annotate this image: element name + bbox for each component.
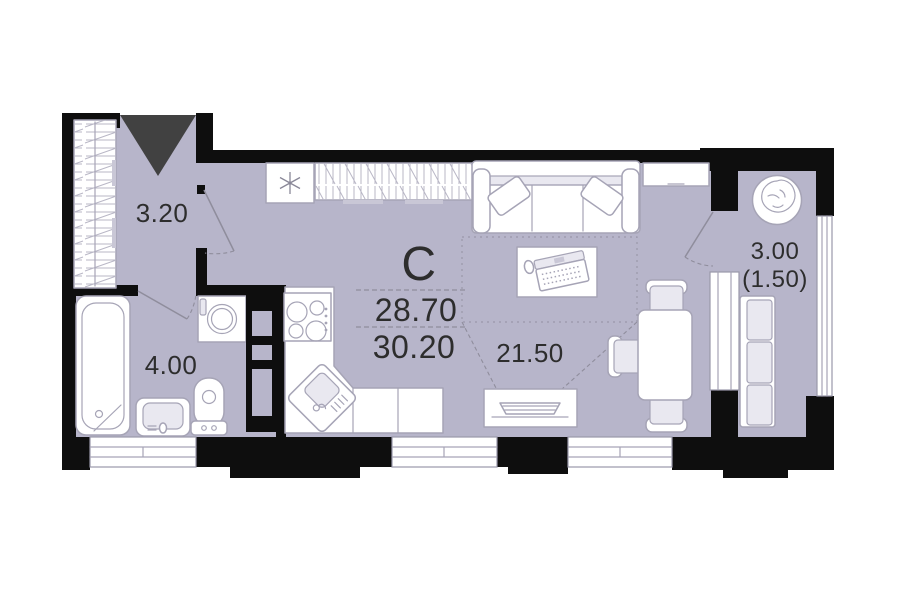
wall-cabinet-icon bbox=[643, 163, 709, 186]
closet-icon bbox=[315, 163, 473, 204]
area-value-1-label: 28.70 bbox=[375, 292, 458, 328]
window-icon bbox=[392, 437, 497, 467]
dining-table-icon bbox=[638, 310, 692, 400]
bathroom-area-label: 4.00 bbox=[145, 350, 198, 380]
floor-plan-svg: 3.20 4.00 С 28.70 30.20 21.50 3.00 (1.50… bbox=[0, 0, 900, 600]
apartment-type-label: С bbox=[401, 238, 436, 291]
window-icon bbox=[817, 216, 832, 396]
wardrobe-icon bbox=[74, 120, 116, 288]
toilet-icon bbox=[191, 378, 227, 435]
area-value-2-label: 30.20 bbox=[373, 329, 456, 365]
balcony-area-reduced-label: (1.50) bbox=[742, 266, 808, 293]
hallway-area-label: 3.20 bbox=[136, 198, 189, 228]
bathtub-icon bbox=[76, 296, 130, 435]
balcony-area-label: 3.00 bbox=[751, 238, 800, 265]
window-icon bbox=[90, 437, 196, 467]
sofa-icon bbox=[472, 161, 640, 233]
window-icon bbox=[568, 437, 672, 467]
stove-icon bbox=[284, 293, 331, 341]
balcony-partition-window bbox=[710, 272, 739, 390]
desk-icon bbox=[517, 247, 597, 297]
washing-machine-icon bbox=[198, 296, 246, 342]
washbasin-icon bbox=[136, 398, 190, 436]
balcony-bench-icon bbox=[740, 296, 775, 427]
living-area-label: 21.50 bbox=[496, 338, 564, 368]
fridge-icon bbox=[266, 163, 314, 203]
floor-plan-canvas: 3.20 4.00 С 28.70 30.20 21.50 3.00 (1.50… bbox=[0, 0, 900, 600]
plant-icon bbox=[753, 176, 802, 225]
